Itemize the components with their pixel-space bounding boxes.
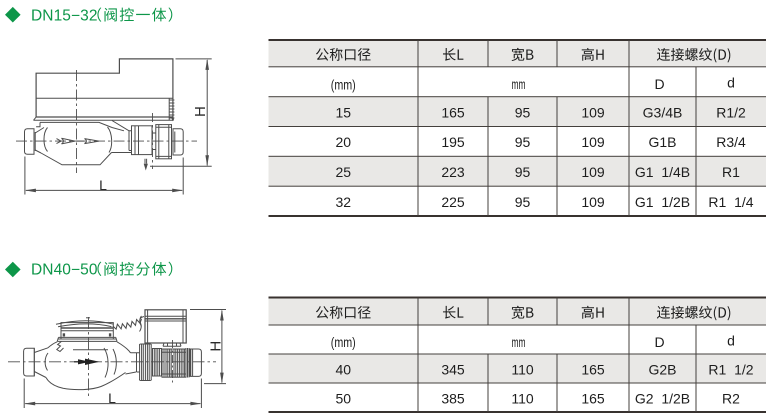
svg-text:109: 109 [581,194,605,210]
svg-text:195: 195 [441,134,465,150]
svg-text:G1 1/2B: G1 1/2B [635,194,690,210]
svg-text:L: L [108,390,116,406]
svg-text:R2: R2 [722,390,740,406]
svg-text:H: H [208,341,225,352]
svg-text:G2B: G2B [648,361,676,377]
svg-text:345: 345 [441,361,465,377]
svg-text:(mm): (mm) [331,334,356,350]
svg-text:G2 1/2B: G2 1/2B [635,390,690,406]
svg-text:DN15−32: DN15−32 [31,7,98,24]
svg-text:165: 165 [441,104,465,120]
svg-text:D: D [654,76,664,92]
svg-text:(mm): (mm) [331,76,356,92]
svg-text:DN40−50: DN40−50 [31,262,98,279]
svg-text:110: 110 [511,390,534,406]
svg-text:95: 95 [515,134,531,150]
svg-text:R1/2: R1/2 [716,104,746,120]
svg-text:40: 40 [335,361,351,377]
svg-text:223: 223 [441,164,465,180]
svg-text:109: 109 [581,104,605,120]
svg-text:20: 20 [335,134,351,150]
svg-text:H: H [192,106,209,117]
svg-text:95: 95 [515,164,531,180]
svg-text:15: 15 [335,104,351,120]
svg-text:110: 110 [511,361,534,377]
svg-text:25: 25 [335,164,351,180]
svg-text:50: 50 [335,390,351,406]
svg-text:165: 165 [581,361,605,377]
svg-text:385: 385 [441,390,465,406]
svg-text:mm: mm [512,335,526,350]
svg-text:109: 109 [581,134,605,150]
svg-text:d: d [727,332,735,348]
svg-text:109: 109 [581,164,605,180]
svg-text:R1 1/2: R1 1/2 [708,361,753,377]
svg-text:G3/4B: G3/4B [643,104,683,120]
svg-text:d: d [727,75,735,91]
svg-text:mm: mm [512,77,526,92]
svg-text:D: D [654,334,664,350]
svg-text:165: 165 [581,390,605,406]
svg-text:R1 1/4: R1 1/4 [708,194,753,210]
svg-text:225: 225 [441,194,465,210]
svg-text:95: 95 [515,104,531,120]
svg-text:G1 1/4B: G1 1/4B [635,164,690,180]
svg-text:G1B: G1B [648,134,676,150]
svg-text:L: L [99,177,107,193]
svg-text:R3/4: R3/4 [716,134,746,150]
svg-text:R1: R1 [722,164,740,180]
svg-text:32: 32 [335,194,351,210]
svg-text:95: 95 [515,194,531,210]
